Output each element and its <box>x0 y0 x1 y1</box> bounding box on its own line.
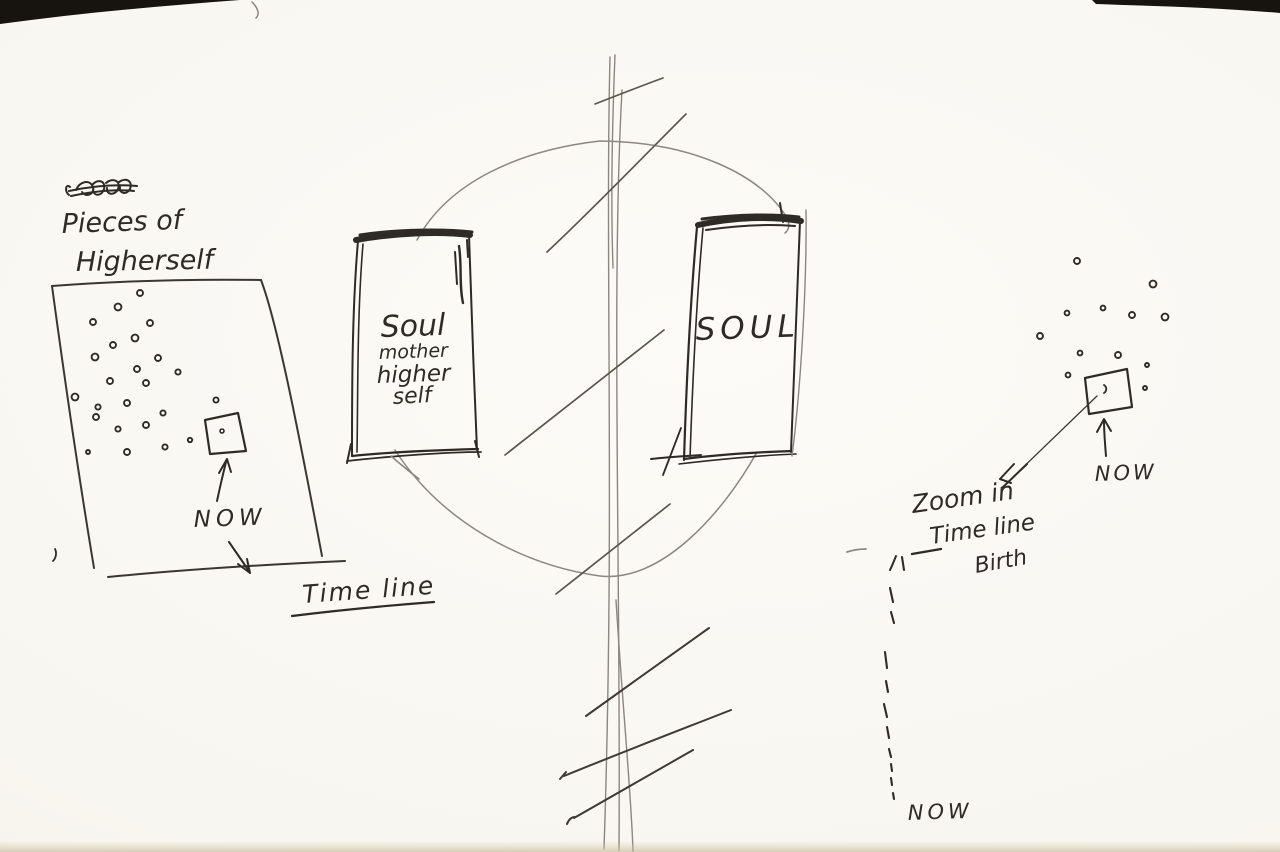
timeline-dash <box>891 612 894 623</box>
timeline-right-label: Time line <box>928 509 1036 549</box>
big-circle <box>395 141 789 576</box>
piece-dot <box>1066 373 1071 378</box>
stray-comma-mark <box>53 549 56 561</box>
birth-tick-dash <box>912 549 941 554</box>
birth-label: Birth <box>973 545 1029 579</box>
piece-dot <box>143 422 149 428</box>
cluster-square-dot <box>1104 385 1106 393</box>
piece-dot <box>147 320 153 326</box>
now-arrow-down-to-timeline <box>229 542 250 573</box>
piece-dot <box>137 290 143 296</box>
card-bottom-tail <box>391 456 419 479</box>
zoom-in-label: Zoom in <box>909 476 1016 519</box>
sketch-photo: Pieces of Higherself NOW Time l <box>0 0 1280 852</box>
timeline-dash <box>887 727 889 738</box>
piece-dot <box>1145 363 1149 367</box>
piece-dot <box>143 380 149 386</box>
timeline-dash <box>885 652 887 668</box>
piece-dot <box>124 400 130 406</box>
sketch-canvas: Pieces of Higherself NOW Time l <box>0 0 1280 852</box>
paper-edges <box>0 0 1280 24</box>
now-arrow-up <box>217 459 231 501</box>
cluster-now-arrow <box>1097 419 1111 456</box>
dashed-line <box>884 557 904 799</box>
piece-dot <box>72 394 79 401</box>
stray-dash-mark <box>847 549 866 552</box>
piece-dot <box>1129 312 1135 318</box>
birth-to-now-timeline: NOW <box>884 557 973 825</box>
zoom-cluster: NOW <box>1000 258 1168 487</box>
cluster-now-square <box>1085 369 1132 414</box>
lower-hatch-strokes <box>560 628 731 824</box>
timeline-dash <box>884 704 887 717</box>
card-cross-tick <box>663 428 681 475</box>
piece-dot <box>134 366 140 372</box>
cluster-dots <box>1037 258 1168 390</box>
piece-dot <box>1150 281 1157 288</box>
piece-dot <box>90 319 96 325</box>
soul-label: SOUL <box>695 308 800 348</box>
piece-dot <box>1162 314 1169 321</box>
timeline-dash <box>902 557 904 570</box>
now-square <box>205 413 246 454</box>
right-now-label: NOW <box>1094 460 1157 486</box>
panel-right-edge <box>261 280 322 556</box>
soul-card-line4: self <box>392 383 435 410</box>
piece-dot <box>95 404 100 409</box>
piece-dot <box>160 410 165 415</box>
upper-diagonal-strokes <box>505 114 686 594</box>
table-edge-top-left <box>0 0 240 24</box>
piece-dot <box>188 438 192 442</box>
table-edge-top-right <box>1092 0 1280 13</box>
left-now-label: NOW <box>193 504 267 533</box>
piece-dot <box>132 335 139 342</box>
piece-dot <box>1037 333 1043 339</box>
paper-corner-curl <box>252 2 258 18</box>
panel-bottom-edge-timeline <box>108 561 345 577</box>
panel-top-edge <box>52 280 261 286</box>
higherself-panel: NOW Time line <box>52 280 436 616</box>
note-comma-mark <box>890 556 896 570</box>
piece-dot <box>93 414 99 420</box>
piece-dot <box>107 378 113 384</box>
timeline-dash <box>893 793 894 799</box>
piece-dot <box>86 450 90 454</box>
pieces-of-label: Pieces of <box>61 205 186 240</box>
piece-dot <box>115 426 120 431</box>
timeline-dash <box>891 778 892 785</box>
vertical-axis-strokes <box>604 55 633 851</box>
timeline-dash <box>890 588 893 602</box>
piece-dot <box>110 342 116 348</box>
panel-left-edge <box>52 286 94 568</box>
piece-dot <box>1078 351 1083 356</box>
higherself-label: Higherself <box>76 245 217 278</box>
piece-dot <box>1101 306 1106 311</box>
piece-dot <box>213 397 218 402</box>
piece-dot <box>124 449 130 455</box>
piece-dot <box>175 369 180 374</box>
timeline-dash <box>886 681 888 692</box>
bottom-now-label: NOW <box>907 799 973 825</box>
piece-dot <box>1074 258 1080 264</box>
piece-dot <box>1065 311 1070 316</box>
timeline-dash <box>891 764 892 771</box>
piece-dot <box>115 304 122 311</box>
now-square-dot <box>220 429 224 433</box>
top-tick-curve <box>595 78 663 104</box>
higherself-dots <box>72 290 219 455</box>
circle-top-arc <box>417 141 789 240</box>
left-notes: Pieces of Higherself <box>61 180 217 278</box>
piece-dot <box>1115 352 1121 358</box>
timeline-dash <box>889 749 891 757</box>
zoom-in-note: Zoom in Time line Birth <box>847 476 1037 579</box>
soul-higherself-card: Soul mother higher self <box>347 230 481 479</box>
soul-card: SOUL <box>651 203 806 475</box>
scribbled-out-word <box>66 180 137 196</box>
piece-dot <box>1143 386 1147 390</box>
piece-dot <box>162 444 167 449</box>
circle-bottom-arc <box>395 450 757 576</box>
piece-dot <box>155 355 161 361</box>
piece-dot <box>92 354 99 361</box>
